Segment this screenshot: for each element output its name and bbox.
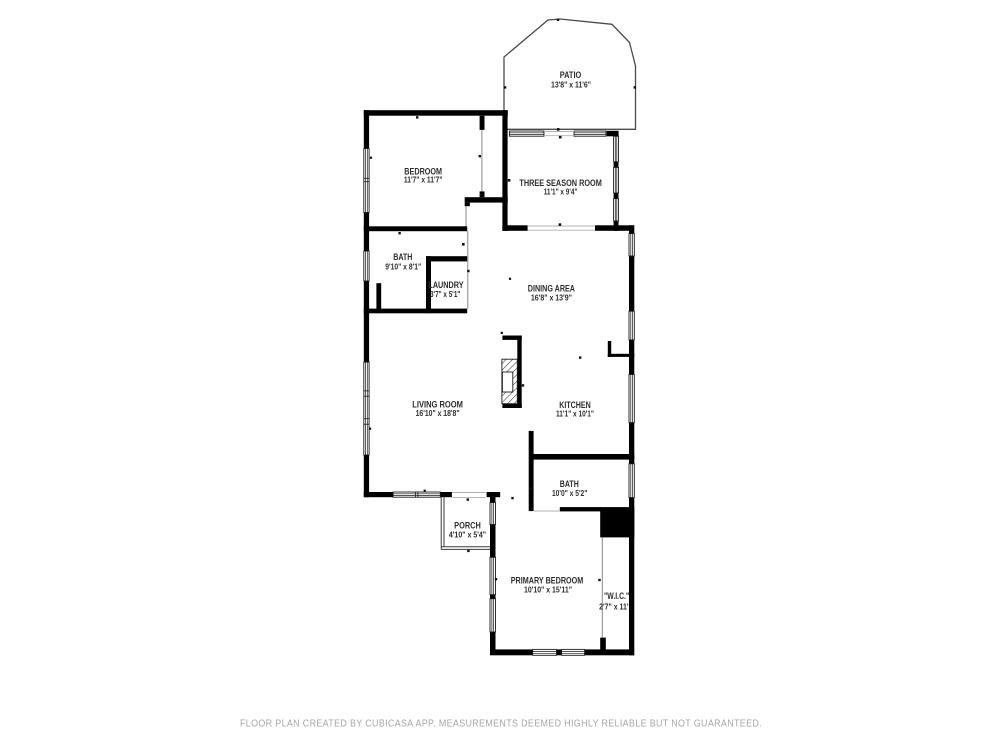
svg-text:PATIO: PATIO bbox=[560, 70, 582, 80]
svg-text:4'10" x 5'4": 4'10" x 5'4" bbox=[449, 529, 486, 539]
svg-text:13'8" x 11'6": 13'8" x 11'6" bbox=[551, 80, 591, 90]
svg-text:10'0" x 5'2": 10'0" x 5'2" bbox=[552, 488, 588, 498]
svg-text:BATH: BATH bbox=[393, 252, 412, 262]
svg-text:11'7" x 11'7": 11'7" x 11'7" bbox=[404, 175, 443, 185]
svg-text:16'10" x 18'8": 16'10" x 18'8" bbox=[416, 408, 460, 418]
svg-text:11'1" x 9'4": 11'1" x 9'4" bbox=[544, 186, 578, 196]
svg-text:16'8" x 13'9": 16'8" x 13'9" bbox=[531, 292, 572, 302]
svg-text:2'7" x 11': 2'7" x 11' bbox=[599, 601, 628, 611]
svg-text:3'7" x 5'1": 3'7" x 5'1" bbox=[430, 289, 460, 299]
svg-text:FLOOR PLAN CREATED BY CUBICASA: FLOOR PLAN CREATED BY CUBICASA APP. MEAS… bbox=[240, 719, 762, 730]
svg-text:11'1" x 10'1": 11'1" x 10'1" bbox=[556, 409, 594, 419]
svg-text:9'10" x 8'1": 9'10" x 8'1" bbox=[385, 262, 421, 272]
svg-text:"W.I.C.": "W.I.C." bbox=[604, 591, 629, 601]
svg-text:10'10" x 15'11": 10'10" x 15'11" bbox=[524, 585, 572, 595]
